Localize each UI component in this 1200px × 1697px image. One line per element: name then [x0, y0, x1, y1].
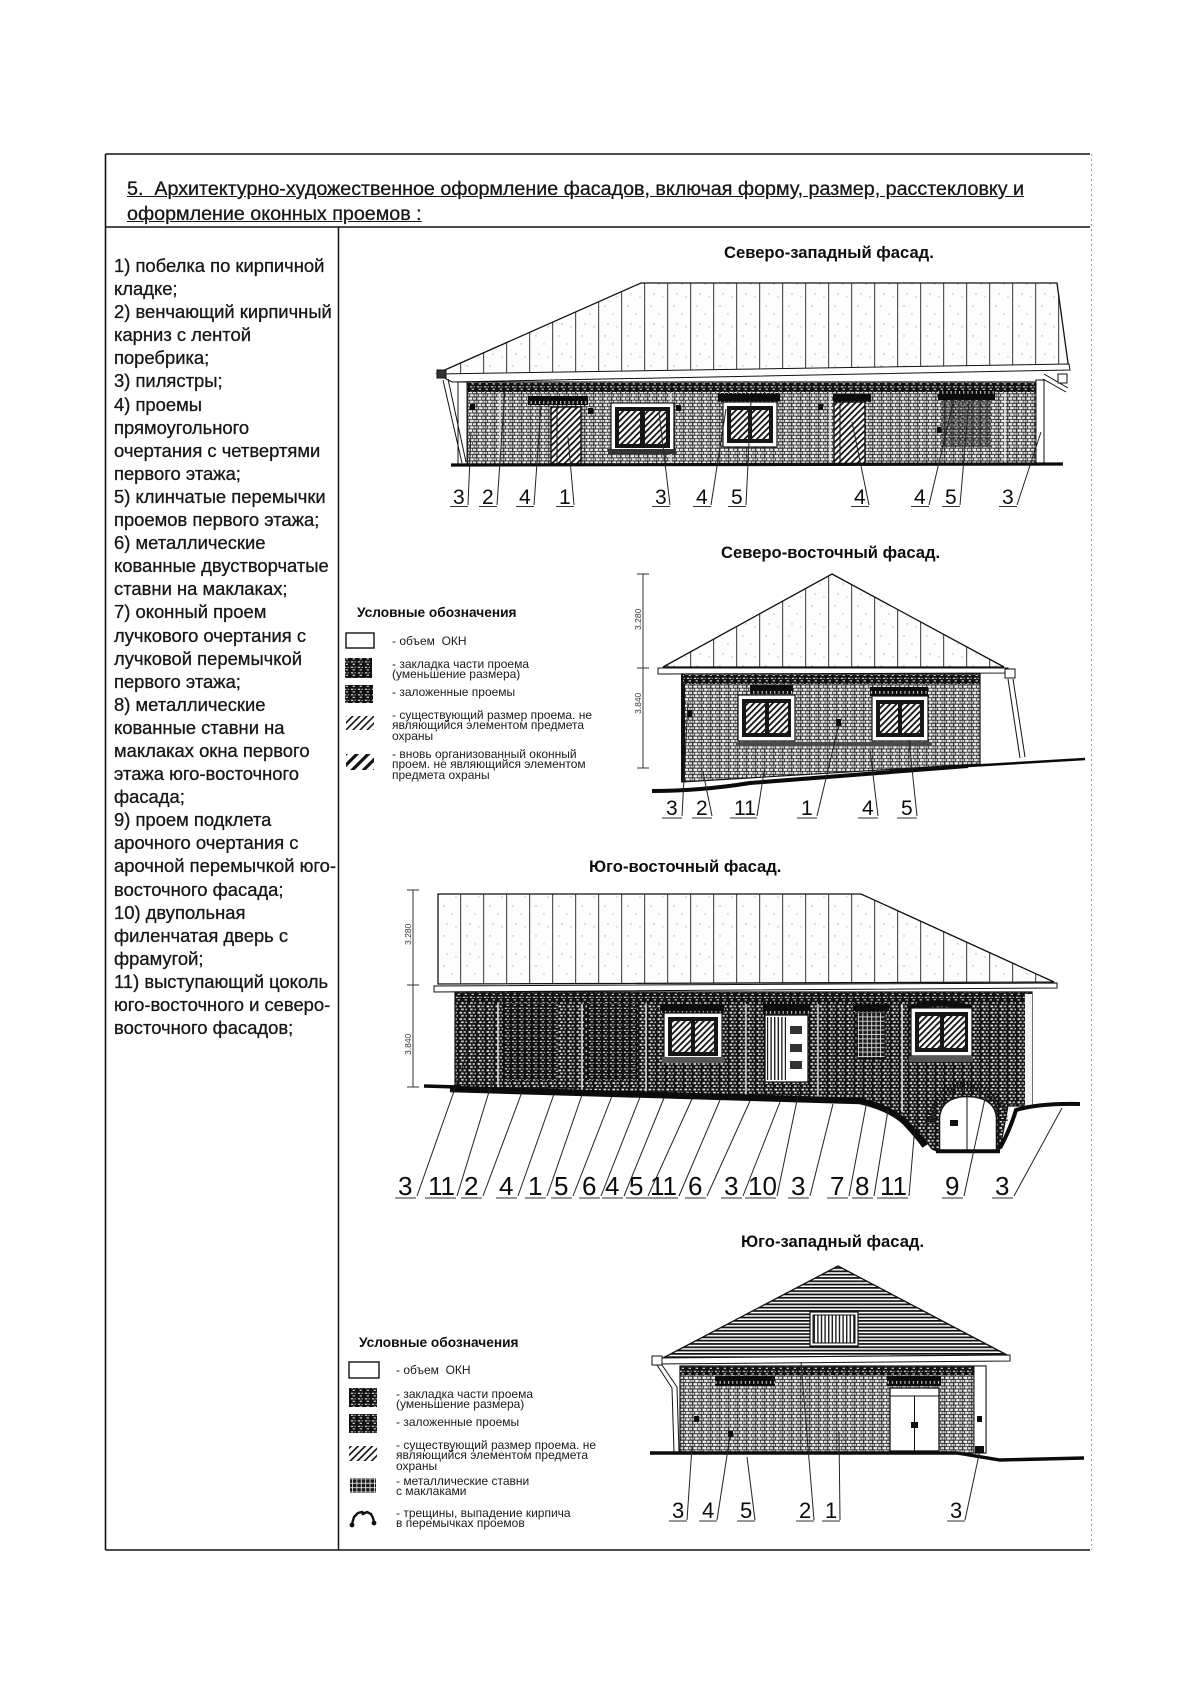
svg-text:11: 11 — [734, 797, 756, 820]
svg-text:4: 4 — [519, 486, 531, 509]
svg-text:3: 3 — [655, 486, 667, 509]
svg-text:1: 1 — [801, 797, 813, 820]
svg-text:3: 3 — [666, 797, 678, 820]
svg-text:6: 6 — [582, 1171, 596, 1201]
svg-text:3: 3 — [995, 1171, 1009, 1201]
svg-text:3: 3 — [724, 1171, 738, 1201]
svg-text:11: 11 — [650, 1171, 677, 1201]
svg-text:2: 2 — [696, 797, 708, 820]
svg-text:5: 5 — [629, 1171, 643, 1201]
svg-text:11: 11 — [428, 1171, 455, 1201]
svg-text:2: 2 — [799, 1498, 811, 1523]
svg-text:3: 3 — [398, 1171, 412, 1201]
svg-text:2: 2 — [482, 486, 494, 509]
svg-text:5: 5 — [554, 1171, 568, 1201]
svg-text:3: 3 — [1002, 486, 1014, 509]
svg-text:3: 3 — [950, 1498, 962, 1523]
svg-text:9: 9 — [945, 1171, 959, 1201]
svg-text:4: 4 — [702, 1498, 714, 1523]
svg-text:7: 7 — [830, 1171, 844, 1201]
svg-text:3: 3 — [672, 1498, 684, 1523]
svg-text:5: 5 — [731, 486, 743, 509]
svg-text:11: 11 — [880, 1171, 907, 1201]
svg-text:4: 4 — [854, 486, 866, 509]
svg-text:1: 1 — [559, 486, 571, 509]
svg-text:4: 4 — [914, 486, 926, 509]
svg-text:4: 4 — [605, 1171, 619, 1201]
svg-text:4: 4 — [862, 797, 874, 820]
svg-text:10: 10 — [748, 1171, 777, 1201]
svg-text:5: 5 — [945, 486, 957, 509]
svg-text:6: 6 — [688, 1171, 702, 1201]
svg-text:5: 5 — [740, 1498, 752, 1523]
svg-text:5: 5 — [901, 797, 913, 820]
svg-text:1: 1 — [528, 1171, 542, 1201]
svg-text:8: 8 — [855, 1171, 869, 1201]
svg-text:1: 1 — [825, 1498, 837, 1523]
svg-text:3: 3 — [453, 486, 465, 509]
svg-text:2: 2 — [464, 1171, 478, 1201]
svg-text:3: 3 — [791, 1171, 805, 1201]
svg-text:4: 4 — [696, 486, 708, 509]
svg-text:4: 4 — [499, 1171, 513, 1201]
